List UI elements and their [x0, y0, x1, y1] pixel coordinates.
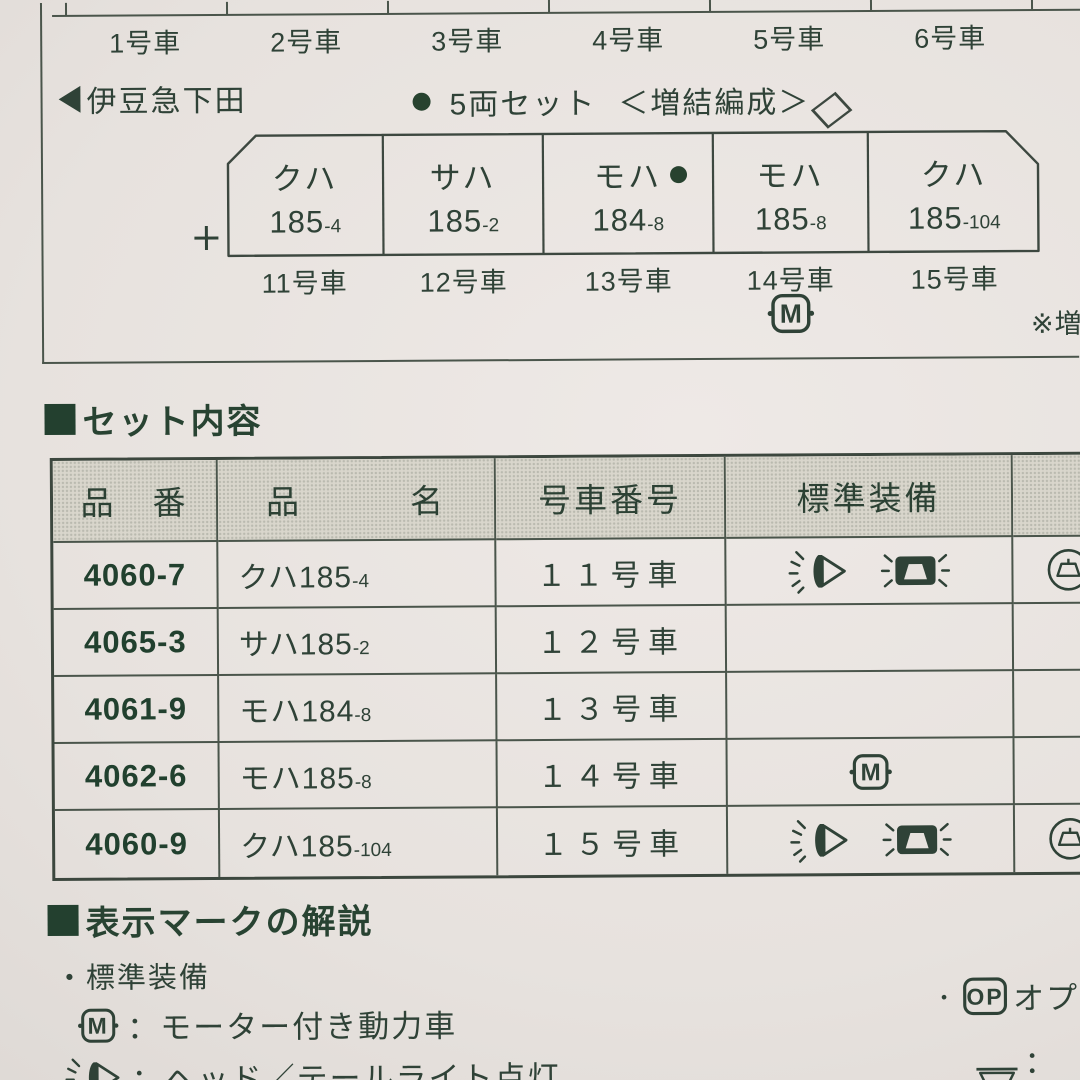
table-row: 4060-9 クハ185-104 １５号車: [55, 804, 1080, 878]
car-no-cell: １１号車: [496, 539, 726, 607]
car-number: 185: [755, 201, 810, 237]
option-cell: [1015, 804, 1080, 872]
table-row: 4060-7 クハ185-4 １１号車: [53, 536, 1080, 610]
interior-light-icon: [1045, 546, 1080, 592]
set-count-label: 5両セット: [449, 79, 596, 124]
product-name: モハ185-8: [219, 741, 497, 810]
car-number: 185: [427, 203, 482, 239]
table-row: 4065-3 サハ185-2 １２号車 （: [54, 603, 1080, 677]
product-name: クハ185-104: [220, 808, 498, 877]
upper-diagram-tick: [226, 2, 228, 15]
heading-square-icon: [44, 404, 75, 435]
legend-standard-label: ・標準装備: [55, 954, 210, 997]
standard-equipment-cell: [726, 537, 1013, 606]
car-no-cell: １４号車: [497, 740, 727, 808]
car-number-suffix: -8: [647, 214, 664, 236]
set-line: 5両セット ＜増結編成＞: [449, 77, 810, 123]
car-number-suffix: -2: [482, 215, 499, 237]
upper-car-label-6: 6号車: [885, 16, 1015, 56]
name-suffix: -8: [354, 705, 371, 727]
car-number-suffix: -4: [324, 216, 341, 238]
upper-diagram-tick: [1031, 0, 1033, 10]
diagram-box-bottom-border: [42, 356, 1079, 364]
product-name: サハ185-2: [219, 607, 497, 676]
option-cell: [1014, 737, 1080, 805]
legend-heading: 表示マークの解説: [47, 894, 373, 945]
option-cell: [1013, 536, 1080, 604]
upper-car-label-5: 5号車: [724, 17, 854, 57]
formation-car-4: モハ 185-8: [715, 140, 867, 251]
upper-car-label-3: 3号車: [402, 19, 532, 59]
part-no: 4062-6: [55, 743, 220, 811]
legend-light-text: ：ヘッド／テールライト点灯: [131, 1052, 560, 1080]
car-no-cell: １２号車: [497, 606, 727, 674]
standard-equipment-cell: [727, 738, 1014, 807]
standard-equipment-cell: [728, 805, 1015, 874]
upper-car-label-2: 2号車: [241, 20, 371, 60]
upper-diagram-tick: [548, 0, 550, 13]
part-no: 4061-9: [54, 676, 219, 744]
upper-car-label-4: 4号車: [563, 18, 693, 58]
heading-square-icon: [47, 905, 78, 936]
interior-light-icon: [1047, 815, 1080, 861]
car-no-cell: １３号車: [497, 673, 727, 741]
destination-line: 伊豆急下田: [57, 76, 246, 121]
car-series: クハ: [921, 149, 988, 194]
option-cell: [1014, 670, 1080, 738]
motor-icon: [77, 1005, 119, 1045]
coupler-plus-icon: [192, 224, 220, 252]
formation-car-1: クハ 185-4: [230, 143, 381, 254]
car-series: モハ: [594, 151, 662, 196]
car-series: モハ: [756, 150, 824, 195]
sheet-content: 1号車 2号車 3号車 4号車 5号車 6号車 伊豆急下田 5両セット ＜増結編…: [0, 0, 1080, 1080]
name-suffix: -2: [353, 638, 370, 660]
standard-equipment-cell: [727, 671, 1014, 740]
set-bullet-dot-icon: [413, 93, 431, 111]
set-contents-table: 品 番 品 名 号車番号 標準装備 4060-7 クハ185-4 １１号車 40…: [50, 451, 1080, 881]
col-header-car-no: 号車番号: [496, 457, 726, 540]
pantograph-diamond-icon: [807, 91, 857, 129]
car-number: 184: [592, 202, 647, 238]
car-number-suffix: -8: [810, 213, 827, 235]
taillight-icon: [880, 549, 950, 591]
headlight-icon: [789, 817, 851, 863]
name-main: モハ185: [240, 753, 355, 798]
name-main: モハ184: [239, 686, 354, 731]
motor-icon: [766, 290, 816, 336]
taillight-icon: [881, 818, 951, 860]
upper-diagram-tick: [709, 0, 711, 12]
col-header-cut: [1013, 454, 1080, 537]
car-no-label-12: 12号車: [399, 260, 529, 300]
set-contents-heading: セット内容: [44, 394, 262, 444]
name-main: サハ185: [239, 619, 353, 664]
name-suffix: -8: [355, 772, 372, 794]
instruction-sheet-photo: 1号車 2号車 3号車 4号車 5号車 6号車 伊豆急下田 5両セット ＜増結編…: [0, 0, 1080, 1080]
left-arrow-icon: [57, 84, 82, 113]
motor-icon: [848, 750, 892, 792]
table-row: 4062-6 モハ185-8 １４号車: [55, 737, 1080, 811]
name-main: クハ185: [238, 552, 352, 597]
set-contents-heading-text: セット内容: [82, 394, 262, 444]
legend-motor-line: ：モーター付き動力車: [77, 1001, 457, 1048]
name-main: クハ185: [240, 821, 354, 866]
upper-car-label-1: 1号車: [80, 21, 210, 61]
car-series: サハ: [430, 152, 497, 197]
product-name: モハ184-8: [219, 674, 497, 743]
col-header-standard-equipment: 標準装備: [726, 455, 1013, 539]
option-bullet: ・: [933, 980, 957, 1012]
upper-diagram-tick: [387, 1, 389, 14]
col-header-name: 品 名: [218, 458, 496, 542]
car-no-label-11: 11号車: [240, 261, 370, 301]
col-header-part-no: 品 番: [53, 460, 218, 543]
name-suffix: -4: [352, 571, 369, 593]
legend-option-line: ・ オプ: [933, 973, 1079, 1019]
part-no: 4060-7: [53, 542, 218, 610]
diagram-box-left-border: [40, 3, 44, 364]
car-no-cell: １５号車: [498, 807, 728, 875]
part-no: 4060-9: [55, 810, 220, 878]
car-no-label-13: 13号車: [564, 259, 694, 299]
formation-car-5: クハ 185-104: [870, 139, 1039, 250]
legend-motor-text: ：モーター付き動力車: [127, 1001, 457, 1048]
table-header-row: 品 番 品 名 号車番号 標準装備: [53, 454, 1080, 543]
upper-diagram-tick: [65, 3, 67, 16]
destination-label: 伊豆急下田: [86, 76, 246, 121]
formation-bullet-dot-icon: [670, 166, 687, 183]
legend-light-line: ：ヘッド／テールライト点灯: [65, 1052, 560, 1080]
formation-car-3: モハ 184-8: [545, 141, 712, 252]
headlight-icon: [788, 548, 850, 594]
formation-car-2: サハ 185-2: [385, 142, 542, 253]
op-icon: [961, 974, 1009, 1018]
legend-option-text: オプ: [1013, 973, 1079, 1018]
car-number-suffix: -104: [963, 212, 1001, 234]
legend-heading-text: 表示マークの解説: [85, 894, 373, 945]
footnote-cut: ※増: [1031, 302, 1080, 341]
car-number: 185: [269, 204, 324, 240]
formation-type-label: ＜増結編成＞: [618, 77, 810, 122]
car-no-label-15: 15号車: [890, 257, 1020, 297]
part-no: 4065-3: [54, 609, 219, 677]
car-number: 185: [908, 200, 963, 236]
table-row: 4061-9 モハ184-8 １３号車: [54, 670, 1080, 744]
legend-interior-line: ：室: [975, 1037, 1080, 1080]
cut-parenthesis: （: [1046, 609, 1080, 664]
name-suffix: -104: [354, 839, 392, 861]
car-series: クハ: [272, 153, 339, 198]
standard-equipment-cell: [727, 604, 1014, 673]
option-cell: （: [1014, 603, 1080, 671]
product-name: クハ185-4: [218, 540, 496, 609]
upper-diagram-tick: [870, 0, 872, 11]
legend-interior-text: ：室: [1024, 1037, 1080, 1080]
ceiling-lamp-icon: [975, 1064, 1018, 1080]
headlight-icon: [65, 1055, 123, 1080]
